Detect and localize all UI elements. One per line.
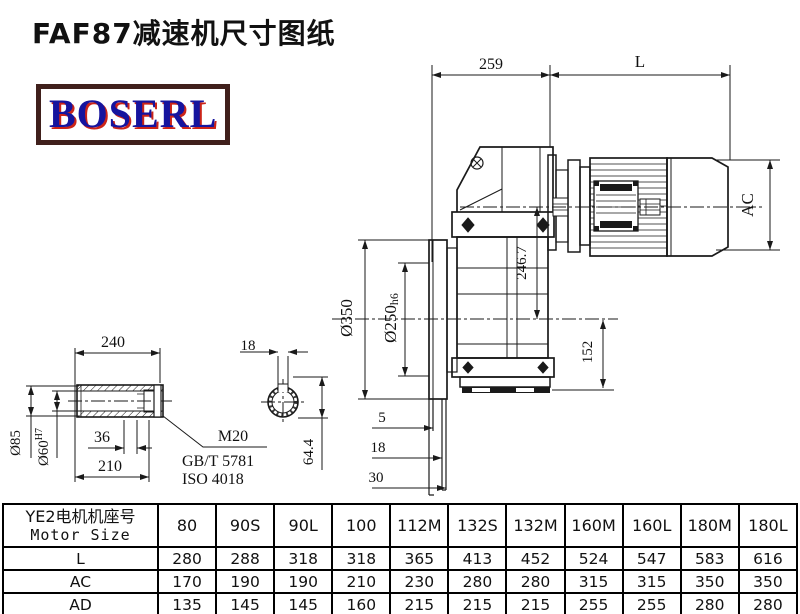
table-cell: 280	[739, 593, 797, 614]
table-cell: 160	[332, 593, 390, 614]
dim-350: Ø350	[337, 299, 356, 337]
dim-key-18: 18	[241, 338, 256, 354]
dimension-labels: 259 L AC 246.7 152 Ø350 Ø250h6 5 18 30 2…	[8, 52, 757, 488]
table-cell: 190	[274, 570, 332, 593]
table-cell: 350	[739, 570, 797, 593]
table-cell: 616	[739, 547, 797, 570]
motor-size-header: YE2电机机座号 Motor Size	[3, 504, 158, 547]
label-ISO4018: ISO 4018	[182, 471, 244, 488]
table-cell: 583	[681, 547, 739, 570]
motor-size-header-en: Motor Size	[4, 526, 157, 544]
table-cell: 145	[274, 593, 332, 614]
table-row: AD135145145160215215215255255280280	[3, 593, 797, 614]
dim-240: 240	[101, 334, 125, 351]
row-label: AD	[3, 593, 158, 614]
dim-64-4: 64.4	[301, 438, 317, 465]
dim-85: Ø85	[8, 430, 24, 456]
dim-259: 259	[479, 56, 503, 73]
reducer-main-view	[429, 147, 554, 495]
motor-adapter-flange	[568, 160, 580, 252]
dim-60H7: Ø60H7	[34, 428, 52, 466]
table-cell: 255	[623, 593, 681, 614]
table-cell: 318	[332, 547, 390, 570]
bolt-symbol	[463, 362, 473, 373]
table-cell: 215	[506, 593, 564, 614]
bolt-symbol	[462, 218, 474, 232]
motor-size-column: 180L	[739, 504, 797, 547]
motor-size-column: 160L	[623, 504, 681, 547]
table-cell: 365	[390, 547, 448, 570]
table-cell: 215	[448, 593, 506, 614]
table-cell: 315	[623, 570, 681, 593]
dim-5: 5	[378, 410, 386, 426]
table-cell: 524	[565, 547, 623, 570]
motor-size-column: 112M	[390, 504, 448, 547]
dim-36: 36	[94, 429, 110, 446]
dim-L: L	[635, 52, 645, 71]
table-cell: 547	[623, 547, 681, 570]
table-cell: 288	[216, 547, 274, 570]
bolt-symbol	[538, 362, 548, 373]
table-cell: 145	[216, 593, 274, 614]
motor-size-table: YE2电机机座号 Motor Size 8090S90L100112M132S1…	[2, 503, 798, 614]
table-cell: 280	[681, 593, 739, 614]
table-body: L280288318318365413452524547583616AC1701…	[3, 547, 797, 614]
motor-size-column: 132S	[448, 504, 506, 547]
motor-size-header-cn: YE2电机机座号	[4, 507, 157, 526]
table-row: AC170190190210230280280315315350350	[3, 570, 797, 593]
motor-size-column: 132M	[506, 504, 564, 547]
dim-18: 18	[371, 440, 386, 456]
table-cell: 230	[390, 570, 448, 593]
motor-size-column: 100	[332, 504, 390, 547]
table-cell: 190	[216, 570, 274, 593]
table-cell: 452	[506, 547, 564, 570]
motor-size-column: 80	[158, 504, 216, 547]
dim-30: 30	[369, 470, 384, 486]
motor-size-column: 180M	[681, 504, 739, 547]
dim-152: 152	[580, 341, 596, 364]
motor-size-column: 90L	[274, 504, 332, 547]
row-label: AC	[3, 570, 158, 593]
table-cell: 280	[506, 570, 564, 593]
row-label: L	[3, 547, 158, 570]
table-cell: 413	[448, 547, 506, 570]
dim-210: 210	[98, 458, 122, 475]
table-cell: 210	[332, 570, 390, 593]
table-cell: 255	[565, 593, 623, 614]
dim-250h6: Ø250h6	[381, 293, 401, 343]
table-cell: 280	[158, 547, 216, 570]
table-cell: 350	[681, 570, 739, 593]
drawing-sheet: FAF87减速机尺寸图纸 BOSERL	[0, 0, 800, 614]
dim-246-7: 246.7	[514, 246, 530, 280]
dimension-lines	[358, 65, 780, 488]
table-cell: 280	[448, 570, 506, 593]
table-cell: 170	[158, 570, 216, 593]
label-M20: M20	[218, 428, 248, 445]
motor-size-column: 160M	[565, 504, 623, 547]
table-row: L280288318318365413452524547583616	[3, 547, 797, 570]
table-header-row: YE2电机机座号 Motor Size 8090S90L100112M132S1…	[3, 504, 797, 547]
table-cell: 135	[158, 593, 216, 614]
table-cell: 215	[390, 593, 448, 614]
bolt-symbol	[537, 218, 549, 232]
table-cell: 315	[565, 570, 623, 593]
motor-size-column: 90S	[216, 504, 274, 547]
label-GBT5781: GB/T 5781	[182, 453, 254, 470]
motor-view	[548, 155, 728, 256]
table-cell: 318	[274, 547, 332, 570]
dim-AC: AC	[738, 193, 757, 217]
technical-drawing: 259 L AC 246.7 152 Ø350 Ø250h6 5 18 30 2…	[0, 0, 800, 502]
